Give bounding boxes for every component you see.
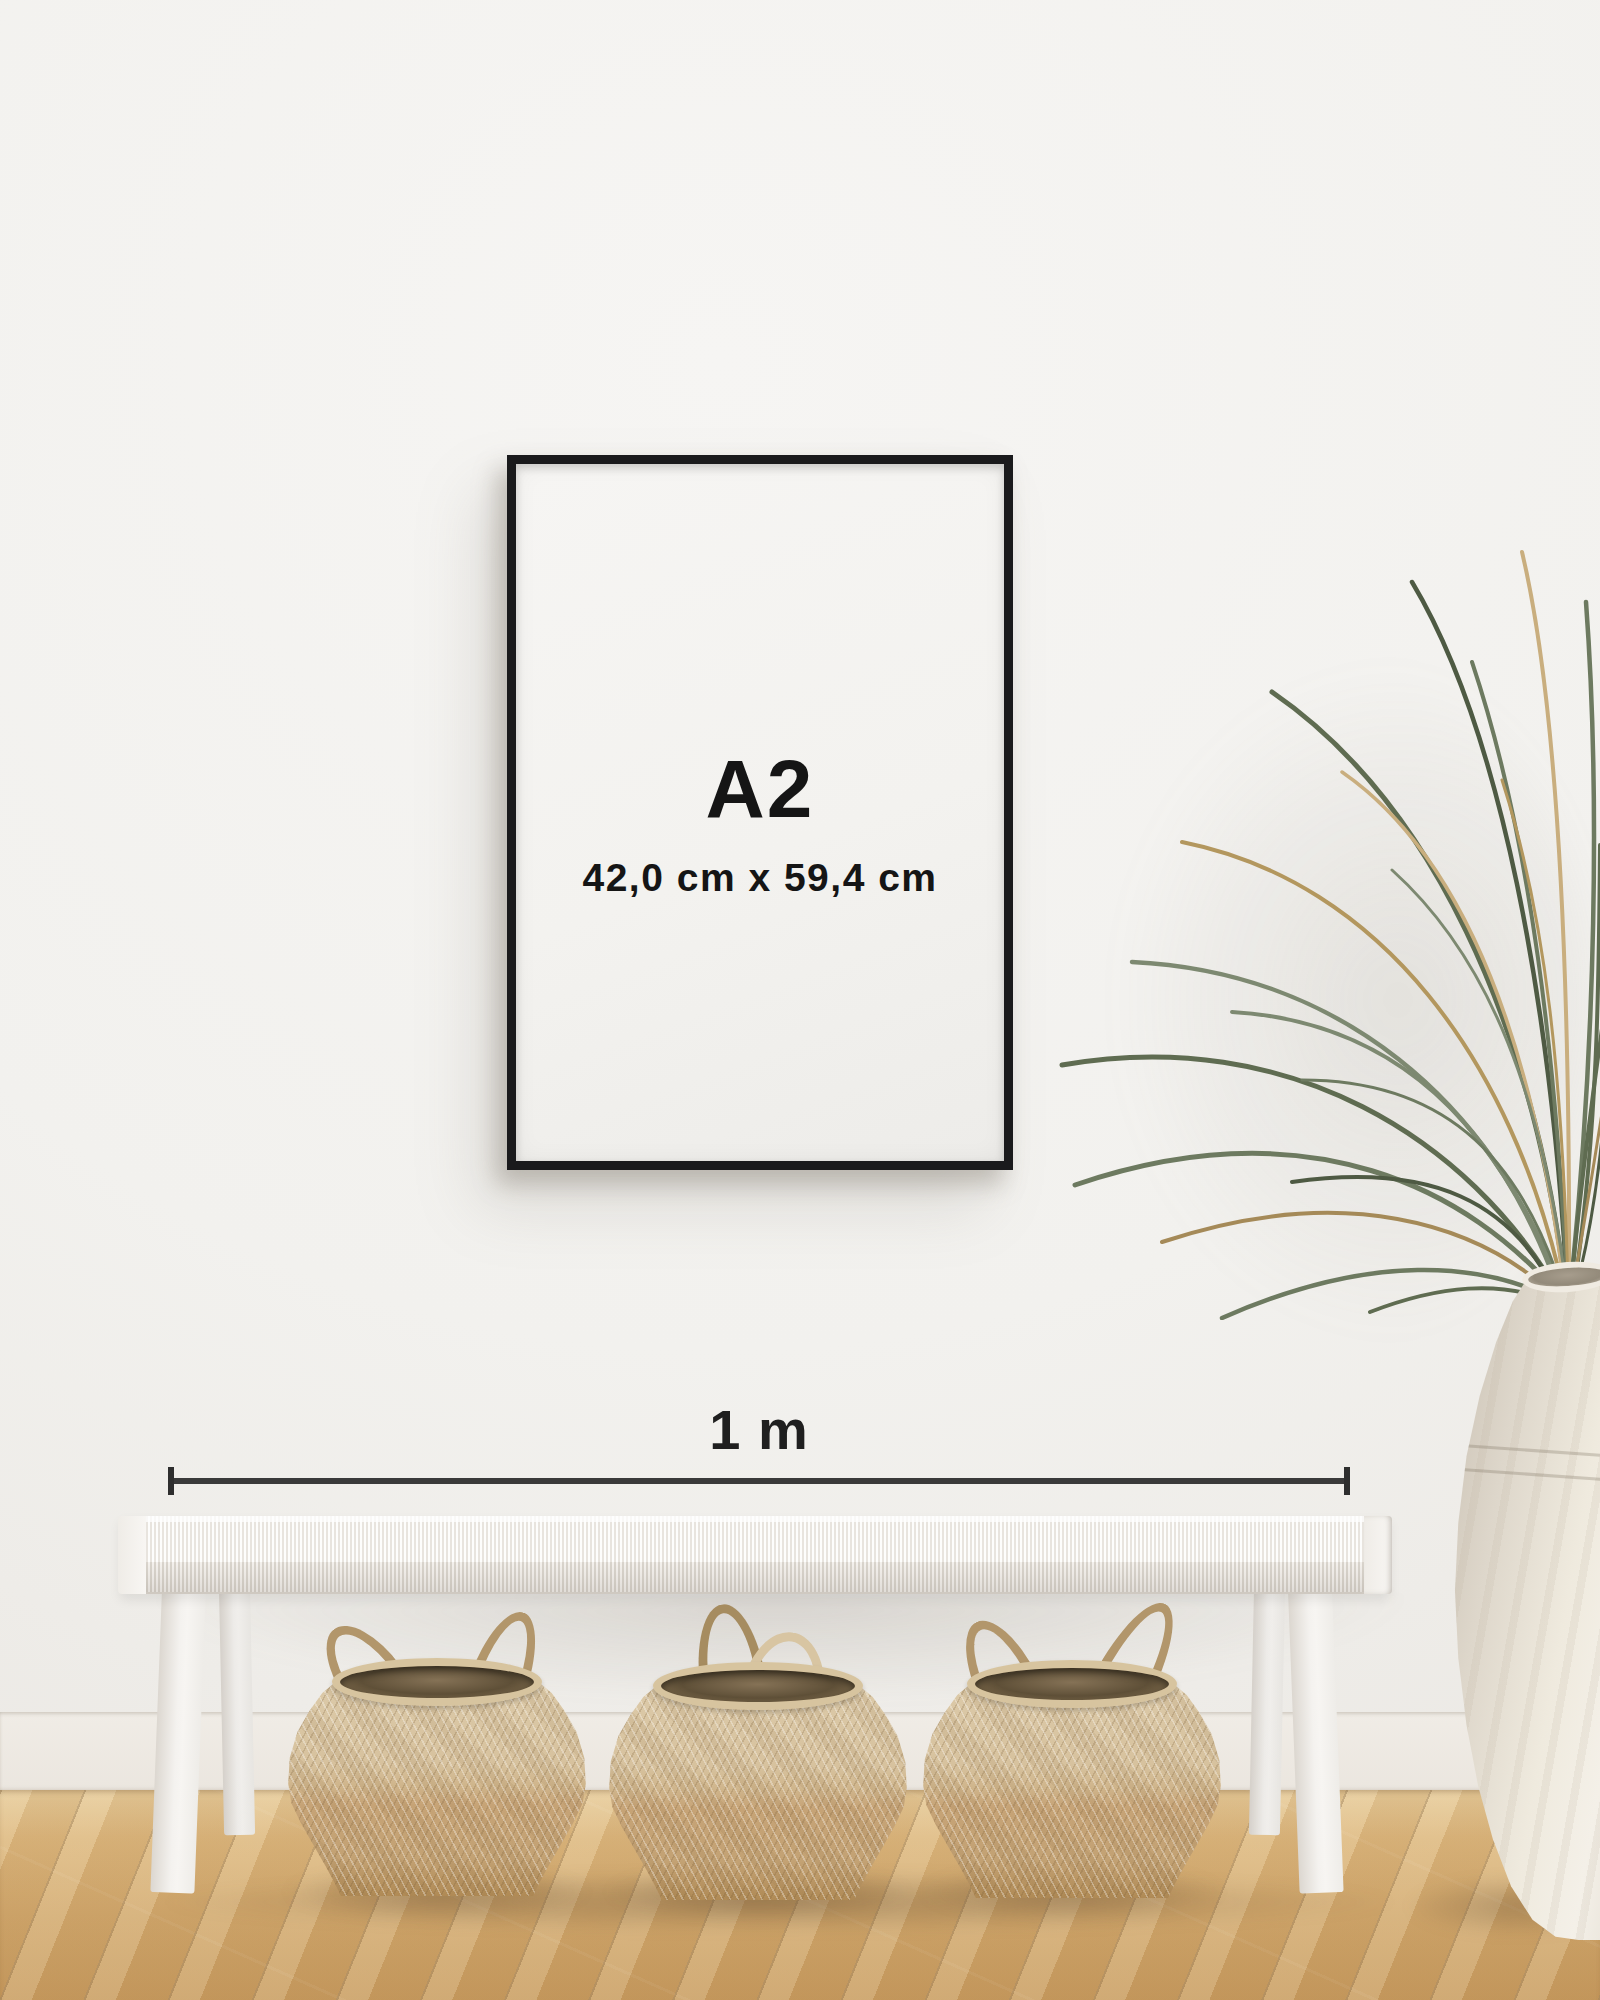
size-guide-mockup: A2 42,0 cm x 59,4 cm	[0, 0, 1600, 2000]
bench-leg-back-left	[219, 1590, 255, 1836]
palm-plant	[1040, 540, 1600, 1320]
basket-body	[603, 1684, 913, 1900]
seagrass-basket-right	[907, 1596, 1237, 1916]
basket-body	[917, 1682, 1227, 1898]
vase-groove	[1457, 1444, 1600, 1458]
size-label: A2	[516, 748, 1004, 830]
poster-size-text: A2 42,0 cm x 59,4 cm	[516, 748, 1004, 897]
bench-leg-back-right	[1249, 1590, 1285, 1836]
bench-front-edge	[120, 1562, 1390, 1594]
scale-bar: 1 m	[168, 1402, 1350, 1484]
basket-rim	[332, 1658, 542, 1706]
dimensions-label: 42,0 cm x 59,4 cm	[516, 858, 1004, 897]
basket-body	[282, 1680, 592, 1896]
bench-woven-top	[120, 1516, 1390, 1562]
seagrass-basket-left	[272, 1596, 602, 1916]
basket-rim	[653, 1662, 863, 1710]
scale-bar-label: 1 m	[168, 1402, 1350, 1458]
vase-groove	[1457, 1468, 1600, 1482]
poster-frame: A2 42,0 cm x 59,4 cm	[507, 455, 1013, 1170]
seagrass-basket-center	[593, 1596, 923, 1916]
basket-rim	[967, 1660, 1177, 1708]
poster-paper: A2 42,0 cm x 59,4 cm	[516, 464, 1004, 1161]
scale-bar-line	[168, 1478, 1350, 1484]
palm-fronds	[1062, 552, 1600, 1318]
bench-seat	[120, 1516, 1390, 1594]
